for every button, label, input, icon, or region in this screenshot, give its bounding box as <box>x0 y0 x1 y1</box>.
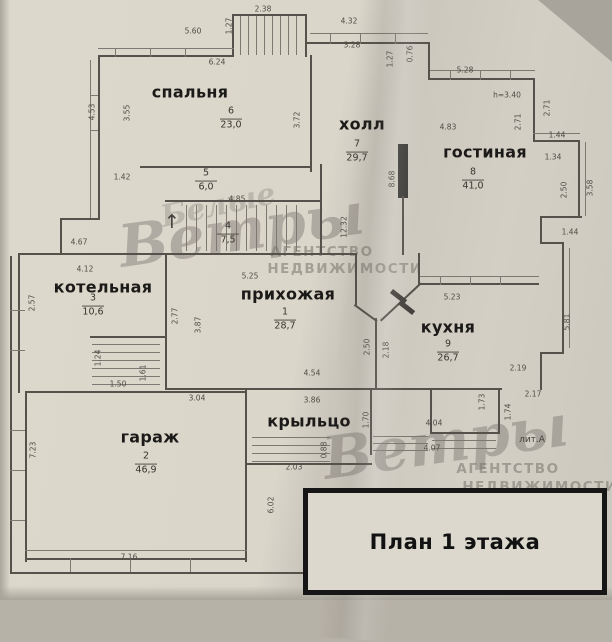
window-line <box>310 33 428 34</box>
wall-segment <box>232 14 305 16</box>
room-area: 46,9 <box>135 466 157 477</box>
wall-segment <box>25 391 247 393</box>
wall-segment <box>355 253 357 305</box>
room-name-label: крыльцо <box>267 412 351 431</box>
dimension-label: 1.24 <box>94 350 103 367</box>
window-line <box>98 48 234 49</box>
stair-tread <box>256 16 257 55</box>
window-line <box>450 70 451 80</box>
dimension-label: 4.67 <box>71 238 88 247</box>
dimension-label: 7.16 <box>121 553 138 562</box>
window-line <box>430 70 535 71</box>
stair-tread <box>186 205 187 251</box>
wall-segment <box>140 166 312 168</box>
window-line <box>330 33 331 44</box>
room-area: 41,0 <box>462 182 484 193</box>
wall-segment <box>540 352 564 354</box>
floor-plan-title-box: План 1 этажа <box>303 488 607 595</box>
dimension-label: 3.58 <box>586 180 595 197</box>
stair-tread <box>252 445 330 446</box>
wall-segment <box>402 196 404 255</box>
room-number-area: 56,0 <box>195 169 217 194</box>
dimension-label: 1.27 <box>225 18 234 35</box>
chimney-block <box>398 144 408 198</box>
room-number: 7 <box>346 140 368 151</box>
window-line <box>115 48 116 57</box>
room-area: 6,0 <box>195 183 217 194</box>
dimension-label: 4.83 <box>440 123 457 132</box>
stair-tread <box>296 205 297 251</box>
dimension-label: 4.04 <box>426 419 443 428</box>
stair-tread <box>246 205 247 251</box>
room-number: 2 <box>135 452 157 463</box>
dimension-label: 2.03 <box>286 463 303 472</box>
dimension-label: 2.50 <box>363 339 372 356</box>
dimension-label: 8.68 <box>388 171 397 188</box>
photo-edge-left <box>0 0 10 600</box>
stair-tread <box>296 16 297 55</box>
room-number: 5 <box>195 169 217 180</box>
room-name-label: холл <box>339 115 385 134</box>
room-number: 8 <box>462 168 484 179</box>
dimension-label: 2.17 <box>525 390 542 399</box>
floor-plan-title: План 1 этажа <box>370 530 541 554</box>
stair-tread <box>288 16 289 55</box>
dimension-label: 2.18 <box>382 342 391 359</box>
stair-tread <box>373 436 428 437</box>
wall-segment <box>165 253 357 255</box>
wall-segment <box>540 352 542 390</box>
wall-segment <box>245 388 247 562</box>
stair-tread <box>92 376 160 377</box>
room-area: 23,0 <box>220 121 242 132</box>
window-line <box>10 470 25 471</box>
dimension-label: 4.12 <box>77 265 94 274</box>
window-line <box>185 48 186 57</box>
dimension-label: 1.73 <box>478 394 487 411</box>
wall-segment <box>310 55 312 172</box>
dimension-label: 1.44 <box>549 131 566 140</box>
stair-tread <box>432 440 496 441</box>
wall-segment <box>540 216 582 218</box>
window-line <box>480 70 481 80</box>
room-name-label: прихожая <box>241 285 335 304</box>
dimension-label: 2.19 <box>510 364 527 373</box>
watermark-agency-line2: НЕДВИЖИМОСТИ <box>267 261 422 277</box>
dimension-label: 4.32 <box>341 17 358 26</box>
dimension-label: 1.27 <box>386 51 395 68</box>
window-line <box>510 70 511 80</box>
window-line <box>395 33 396 44</box>
stair-tread <box>248 16 249 55</box>
window-line <box>70 558 71 572</box>
dimension-label: 3.04 <box>189 394 206 403</box>
stair-tread <box>264 16 265 55</box>
window-line <box>500 276 501 285</box>
dimension-label: 1.74 <box>504 404 513 421</box>
dimension-label: 6.02 <box>267 497 276 514</box>
wall-segment <box>540 216 542 244</box>
wall-segment <box>98 55 100 220</box>
dimension-label: 5.28 <box>457 66 474 75</box>
wall-segment <box>320 164 322 255</box>
stair-tread <box>196 205 197 251</box>
room-area: 10,6 <box>82 308 104 319</box>
dimension-label: 2.38 <box>255 5 272 14</box>
dimension-label: 1.70 <box>362 412 371 429</box>
wall-segment <box>18 253 167 255</box>
wall-segment <box>60 218 62 255</box>
wall-segment <box>305 42 430 44</box>
dimension-label: 12.32 <box>340 216 349 237</box>
room-number: 3 <box>82 294 104 305</box>
room-name-label: спальня <box>152 83 229 102</box>
wall-segment <box>245 463 372 465</box>
room-number: 4 <box>217 222 239 233</box>
dimension-label: 3.72 <box>293 112 302 129</box>
stair-tread <box>280 16 281 55</box>
stair-tread <box>92 344 160 345</box>
dimension-label: 1.50 <box>110 380 127 389</box>
wall-segment <box>578 140 580 218</box>
dimension-label: 2.71 <box>514 114 523 131</box>
wall-segment <box>562 242 564 354</box>
stair-tread <box>272 16 273 55</box>
room-number-area: 128,7 <box>274 308 296 333</box>
wall-segment <box>418 253 420 285</box>
wall-segment <box>18 253 20 393</box>
wall-segment <box>428 78 535 80</box>
dimension-label: 3.55 <box>123 105 132 122</box>
window-line <box>420 276 539 277</box>
room-number-area: 246,9 <box>135 452 157 477</box>
dimension-label: 5.60 <box>185 27 202 36</box>
room-area: 26,7 <box>437 354 459 365</box>
dimension-label: 2.77 <box>171 308 180 325</box>
room-number: 9 <box>437 340 459 351</box>
dimension-label: 2.57 <box>28 295 37 312</box>
dimension-label: h=3.40 <box>493 91 521 100</box>
dimension-label: 2.50 <box>560 182 569 199</box>
dimension-label: 3.87 <box>194 317 203 334</box>
window-line <box>440 276 441 285</box>
dimension-label: 1.61 <box>139 365 148 382</box>
stair-tread <box>256 205 257 251</box>
wall-segment <box>305 42 307 57</box>
wall-segment <box>165 388 502 390</box>
dimension-label: 4.85 <box>229 195 246 204</box>
wall-segment <box>428 42 430 80</box>
room-number: 6 <box>220 107 242 118</box>
room-number-area: 623,0 <box>220 107 242 132</box>
stair-tread <box>286 205 287 251</box>
window-line <box>470 276 471 285</box>
stair-tread <box>252 437 330 438</box>
room-number-area: 841,0 <box>462 168 484 193</box>
wall-segment <box>25 391 27 562</box>
window-line <box>190 558 191 572</box>
room-name-label: кухня <box>421 318 475 337</box>
wall-segment <box>165 253 167 390</box>
stair-tread <box>373 443 428 444</box>
wall-segment <box>90 336 167 338</box>
window-line <box>90 130 98 131</box>
window-line <box>10 520 25 521</box>
window-line <box>150 48 151 57</box>
dimension-label: 7.23 <box>29 442 38 459</box>
wall-segment <box>10 256 12 574</box>
room-number-area: 47,5 <box>217 222 239 247</box>
dimension-label: 1.42 <box>114 173 131 182</box>
dimension-label: 3.86 <box>304 396 321 405</box>
dimension-label: 5.23 <box>444 293 461 302</box>
dimension-label: 4.54 <box>304 369 321 378</box>
window-line <box>90 95 98 96</box>
stair-tread <box>240 16 241 55</box>
room-name-label: гостиная <box>443 143 527 162</box>
window-line <box>90 60 91 218</box>
room-area: 7,5 <box>217 236 239 247</box>
stair-tread <box>373 450 428 451</box>
stair-tread <box>252 453 330 454</box>
dimension-label: 1.44 <box>562 228 579 237</box>
wall-segment <box>498 388 500 434</box>
room-area: 29,7 <box>346 154 368 165</box>
stair-tread <box>432 448 496 449</box>
stair-tread <box>206 205 207 251</box>
stair-tread <box>266 205 267 251</box>
room-area: 28,7 <box>274 322 296 333</box>
wall-segment <box>375 318 377 390</box>
window-line <box>10 430 25 431</box>
wall-segment <box>540 242 564 244</box>
wall-segment <box>10 572 312 574</box>
room-number-area: 729,7 <box>346 140 368 165</box>
window-line <box>569 248 570 348</box>
window-line <box>10 310 25 311</box>
stairs-direction-arrow-icon: ↑ <box>164 211 180 233</box>
plan-annotation: лит.А <box>519 435 545 445</box>
room-number: 1 <box>274 308 296 319</box>
dimension-label: 5.81 <box>563 314 572 331</box>
dimension-label: 1.34 <box>545 153 562 162</box>
dimension-label: 4.53 <box>88 104 97 121</box>
window-line <box>10 350 25 351</box>
dimension-label: 2.71 <box>543 100 552 117</box>
window-line <box>25 550 247 551</box>
stair-tread <box>92 368 160 369</box>
stair-tread <box>276 205 277 251</box>
wall-segment <box>420 283 539 285</box>
wall-segment <box>430 432 500 434</box>
dimension-label: 3.28 <box>344 41 361 50</box>
dimension-label: 0.76 <box>406 46 415 63</box>
dimension-label: 5.25 <box>242 272 259 281</box>
room-number-area: 310,6 <box>82 294 104 319</box>
wall-segment <box>533 140 580 142</box>
dimension-label: 4.07 <box>424 444 441 453</box>
room-number-area: 926,7 <box>437 340 459 365</box>
watermark-agency-line1-2: АГЕНТСТВО <box>456 461 559 477</box>
room-name-label: гараж <box>121 428 180 447</box>
dimension-label: 6.24 <box>209 58 226 67</box>
wall-segment <box>60 218 100 220</box>
dimension-label: 0.88 <box>320 442 329 459</box>
